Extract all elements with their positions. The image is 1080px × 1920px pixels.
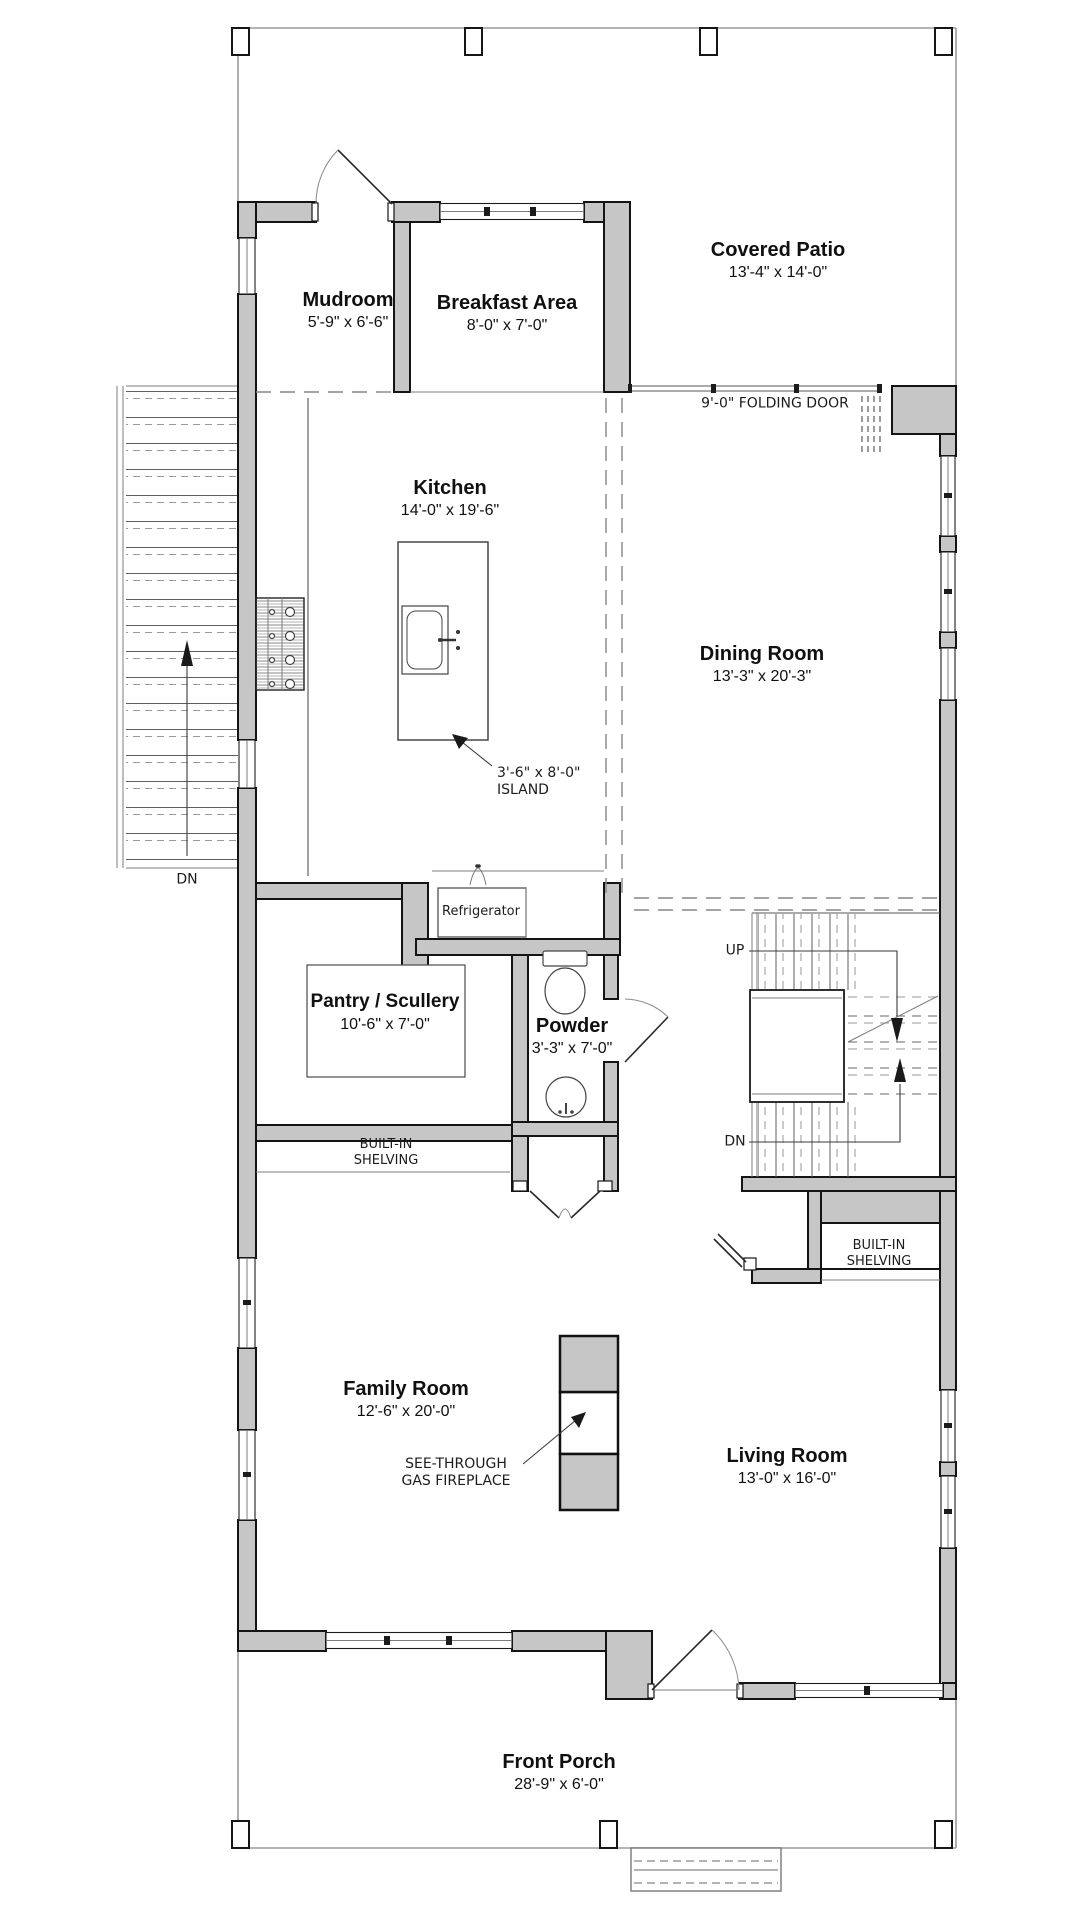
stair-closet-door <box>714 1234 756 1270</box>
room-label-mudroom: Mudroom 5'-9" x 6'-6" <box>302 289 393 333</box>
mudroom-door <box>312 150 394 221</box>
stair-up-label: UP <box>726 943 745 960</box>
front-door <box>648 1630 743 1698</box>
floor-plan-drawing <box>0 0 1080 1920</box>
floor-plan: Covered Patio 13'-4" x 14'-0" Mudroom 5'… <box>0 0 1080 1920</box>
exterior-stair <box>117 386 238 868</box>
toilet-bowl <box>545 968 585 1014</box>
room-label-porch: Front Porch 28'-9" x 6'-0" <box>502 1751 615 1795</box>
room-label-family: Family Room 12'-6" x 20'-0" <box>343 1378 469 1422</box>
breakfast-windows <box>440 204 584 220</box>
room-label-covered-patio: Covered Patio 13'-4" x 14'-0" <box>711 239 845 283</box>
powder-door <box>625 999 668 1062</box>
fireplace <box>560 1336 618 1510</box>
toilet-tank <box>543 951 587 966</box>
annotation-refrigerator: Refrigerator <box>442 904 520 920</box>
interior-stair <box>749 913 940 1177</box>
annotation-island: 3'-6" x 8'-0" ISLAND <box>497 765 581 799</box>
room-label-powder: Powder 3'-3" x 7'-0" <box>532 1015 613 1059</box>
room-label-dining: Dining Room 13'-3" x 20'-3" <box>700 643 824 687</box>
annotation-shelving-right: BUILT-IN SHELVING <box>847 1238 912 1270</box>
kitchen-island <box>398 542 488 740</box>
folding-door-wall <box>628 384 882 452</box>
porch-steps <box>631 1848 781 1891</box>
annotation-shelving-left: BUILT-IN SHELVING <box>354 1137 419 1169</box>
exterior-stair-down-label: DN <box>176 872 197 889</box>
annotation-folding-door: 9'-0" FOLDING DOOR <box>701 396 849 413</box>
stair-down-label: DN <box>724 1134 745 1151</box>
dining-windows <box>941 456 955 700</box>
annotation-fireplace: SEE-THROUGH GAS FIREPLACE <box>401 1456 510 1490</box>
room-label-pantry: Pantry / Scullery 10'-6" x 7'-0" <box>311 991 460 1035</box>
range <box>256 598 304 690</box>
stair-landing <box>750 990 844 1102</box>
room-label-living: Living Room 13'-0" x 16'-0" <box>726 1445 847 1489</box>
mudroom-window <box>239 238 255 294</box>
doors <box>312 150 756 1698</box>
stair-landing-window <box>239 740 255 788</box>
room-label-breakfast: Breakfast Area 8'-0" x 7'-0" <box>437 292 577 336</box>
ceiling-break-lines <box>256 392 940 910</box>
refrigerator-niche <box>432 864 604 937</box>
room-label-kitchen: Kitchen 14'-0" x 19'-6" <box>401 477 499 521</box>
